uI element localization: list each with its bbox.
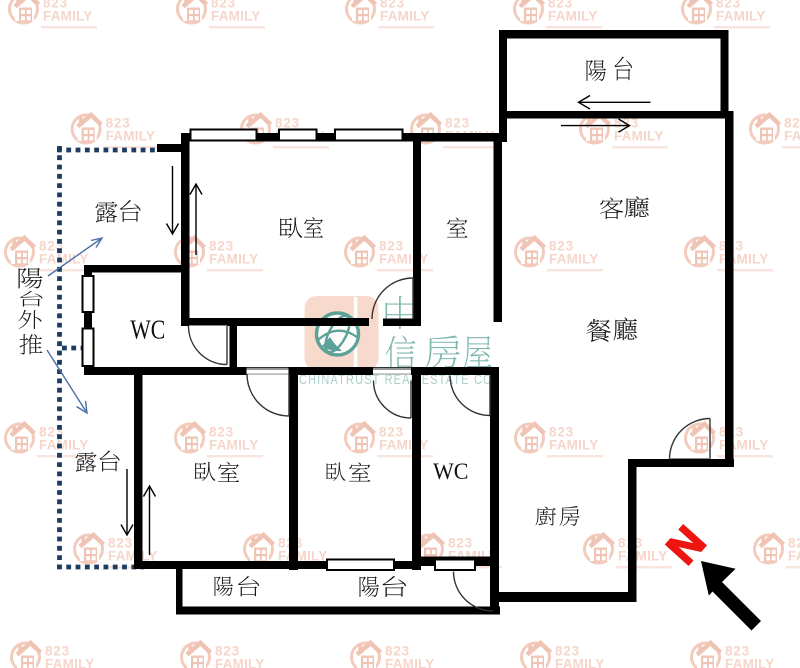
- svg-text:WC: WC: [130, 314, 165, 345]
- svg-text:WC: WC: [433, 459, 469, 485]
